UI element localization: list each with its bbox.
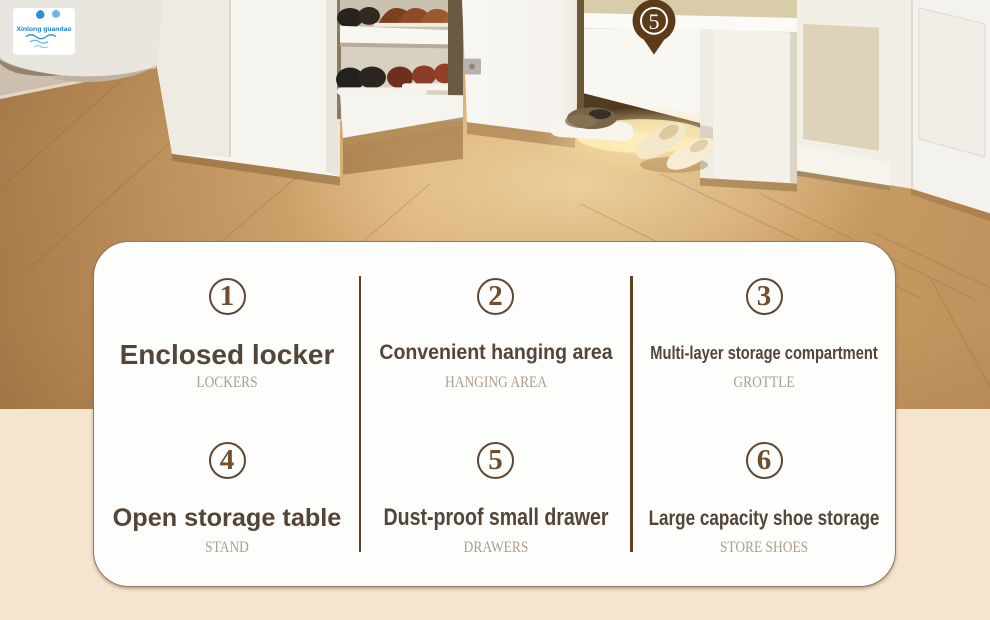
svg-text:Xinlong guandao: Xinlong guandao <box>16 26 71 33</box>
svg-text:5: 5 <box>649 9 660 34</box>
